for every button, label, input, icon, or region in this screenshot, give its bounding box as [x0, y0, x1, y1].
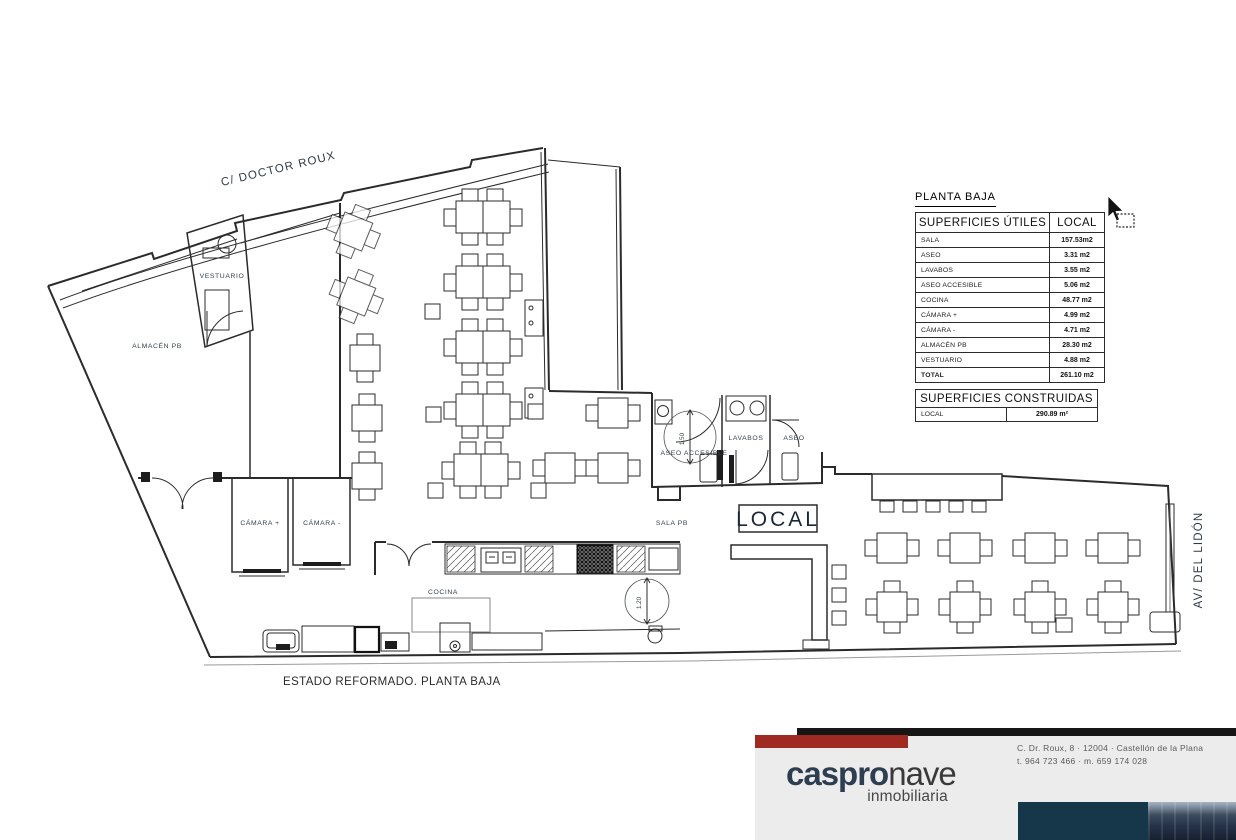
street-label: C/ DOCTOR ROUX: [220, 150, 337, 189]
camara-plus-label: CÁMARA +: [240, 518, 279, 527]
local-entry: LOCAL SALA PB: [656, 505, 846, 649]
bathrooms: 1.50 ASEO ACCESIBLE LAVABOS ASEO: [652, 393, 822, 500]
table-row: VESTUARIO4.88 m2: [916, 353, 1105, 368]
table-row: CÁMARA -4.71 m2: [916, 323, 1105, 338]
table-row: LOCAL 290.89 m²: [916, 408, 1098, 422]
cell-value: 3.31 m2: [1050, 248, 1105, 263]
mouse-cursor-icon: [1103, 193, 1143, 233]
footer-photo: [1018, 802, 1236, 840]
cell-label: ALMACÉN PB: [916, 338, 1050, 353]
col-superficies-utiles: SUPERFICIES ÚTILES: [916, 213, 1050, 233]
table-row: ALMACÉN PB28.30 m2: [916, 338, 1105, 353]
table-header-row: SUPERFICIES ÚTILES LOCAL: [916, 213, 1105, 233]
room-vestuario: VESTUARIO: [187, 215, 253, 347]
vestuario-label: VESTUARIO: [200, 273, 245, 280]
footer-address: C. Dr. Roux, 8 · 12004 · Castellón de la…: [1017, 742, 1203, 768]
local-label: LOCAL: [736, 508, 820, 531]
table-row-total: TOTAL261.10 m2: [916, 368, 1105, 383]
table-row: SALA157.53m2: [916, 233, 1105, 248]
room-cocina: COCINA 1.20: [263, 544, 680, 652]
lavabos-label: LAVABOS: [729, 435, 764, 442]
table-row: CÁMARA +4.99 m2: [916, 308, 1105, 323]
planta-baja-title: PLANTA BAJA: [915, 191, 996, 207]
brand-secondary: nave: [888, 755, 956, 792]
photo-teal-block: [1018, 802, 1148, 840]
cell-label: LOCAL: [916, 408, 1007, 422]
table-row: ASEO3.31 m2: [916, 248, 1105, 263]
cell-value: 48.77 m2: [1050, 293, 1105, 308]
cell-value: 28.30 m2: [1050, 338, 1105, 353]
cell-label: SALA: [916, 233, 1050, 248]
plan-caption: ESTADO REFORMADO. PLANTA BAJA: [283, 676, 501, 688]
table-header-row: SUPERFICIES CONSTRUIDAS: [916, 390, 1098, 408]
cell-label: TOTAL: [916, 368, 1050, 383]
dim-aseo: 1.50: [679, 432, 686, 445]
brand-logo: caspronave inmobiliaria: [786, 756, 948, 806]
avenue-label: AV/ DEL LIDÓN: [1192, 512, 1205, 609]
address-line1: C. Dr. Roux, 8 · 12004 · Castellón de la…: [1017, 742, 1203, 755]
address-line2: t. 964 723 466 · m. 659 174 028: [1017, 755, 1203, 768]
cell-label: CÁMARA -: [916, 323, 1050, 338]
aseo-accesible-label: ASEO ACCESIBLE: [661, 450, 728, 457]
cell-label: ASEO ACCESIBLE: [916, 278, 1050, 293]
superficies-construidas-table: SUPERFICIES CONSTRUIDAS LOCAL 290.89 m²: [915, 389, 1098, 422]
col-local: LOCAL: [1050, 213, 1105, 233]
cell-value: 261.10 m2: [1050, 368, 1105, 383]
interior-walls: [138, 203, 680, 575]
cell-value: 5.06 m2: [1050, 278, 1105, 293]
cell-label: CÁMARA +: [916, 308, 1050, 323]
cocina-label: COCINA: [428, 589, 458, 596]
cell-label: LAVABOS: [916, 263, 1050, 278]
aseo-label: ASEO: [783, 435, 804, 442]
sala-label: SALA PB: [656, 520, 688, 527]
hall-tables: [319, 189, 640, 500]
cell-label: ASEO: [916, 248, 1050, 263]
cell-value: 3.55 m2: [1050, 263, 1105, 278]
cell-value: 4.71 m2: [1050, 323, 1105, 338]
right-wing: [865, 474, 1180, 633]
table-row: LAVABOS3.55 m2: [916, 263, 1105, 278]
footer-red-bar: [755, 735, 908, 748]
dim-cocina: 1.20: [636, 596, 643, 609]
room-camaras: CÁMARA + CÁMARA -: [232, 478, 350, 576]
cell-label: VESTUARIO: [916, 353, 1050, 368]
page: C/ DOCTOR ROUX: [0, 0, 1236, 840]
table-row: ASEO ACCESIBLE5.06 m2: [916, 278, 1105, 293]
brand-primary: caspro: [786, 755, 888, 792]
cell-value: 157.53m2: [1050, 233, 1105, 248]
superficies-utiles-table: SUPERFICIES ÚTILES LOCAL SALA157.53m2 AS…: [915, 212, 1105, 383]
camara-minus-label: CÁMARA -: [303, 518, 341, 527]
photo-building: [1148, 802, 1236, 840]
brand-wordmark: caspronave: [786, 756, 948, 792]
construidas-title: SUPERFICIES CONSTRUIDAS: [916, 390, 1098, 408]
cell-value: 290.89 m²: [1007, 408, 1098, 422]
cell-value: 4.88 m2: [1050, 353, 1105, 368]
table-row: COCINA48.77 m2: [916, 293, 1105, 308]
cell-label: COCINA: [916, 293, 1050, 308]
cell-value: 4.99 m2: [1050, 308, 1105, 323]
almacen-label: ALMACÉN PB: [132, 341, 182, 350]
